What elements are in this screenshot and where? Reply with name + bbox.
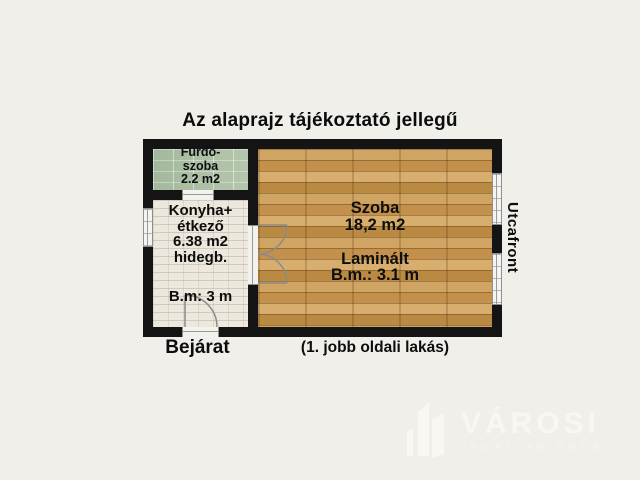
kitchen-label: Konyha+ étkező 6.38 m2 hidegb.: [153, 203, 248, 265]
kitchen-name-line1: Konyha+: [153, 203, 248, 219]
page-title: Az alaprajz tájékoztató jellegű: [0, 110, 640, 132]
kitchen-ceiling-height: B.m: 3 m: [153, 288, 248, 305]
watermark-subtitle: INGATLANIRODA: [463, 442, 623, 452]
bathroom-label: Fürdő- szoba 2.2 m2: [153, 146, 248, 187]
apartment-note: (1. jobb oldali lakás): [250, 339, 500, 357]
living-room-area: 18,2 m2: [258, 217, 492, 234]
entrance-label: Bejárat: [145, 337, 250, 359]
living-room-label: Szoba 18,2 m2: [258, 200, 492, 234]
entrance-door-symbol: [182, 327, 219, 337]
watermark-brand: VÁROSI: [461, 407, 621, 441]
living-room-floor: [258, 149, 492, 327]
living-room-ceiling-height: B.m.: 3.1 m: [258, 268, 492, 284]
bathroom-area: 2.2 m2: [153, 173, 248, 187]
street-front-label: Utcafront: [499, 186, 521, 290]
bathroom-name-line2: szoba: [153, 160, 248, 174]
kitchen-name-line2: étkező: [153, 219, 248, 235]
living-room-name: Szoba: [258, 200, 492, 217]
buildings-icon: [404, 398, 452, 460]
bathroom-name-line1: Fürdő-: [153, 146, 248, 160]
living-room-details: Laminált B.m.: 3.1 m: [258, 252, 492, 283]
kitchen-window-symbol: [143, 208, 153, 247]
kitchen-note: hidegb.: [153, 250, 248, 266]
double-door-symbol: [248, 225, 258, 285]
kitchen-area: 6.38 m2: [153, 234, 248, 250]
bathroom-door-symbol: [182, 190, 214, 200]
